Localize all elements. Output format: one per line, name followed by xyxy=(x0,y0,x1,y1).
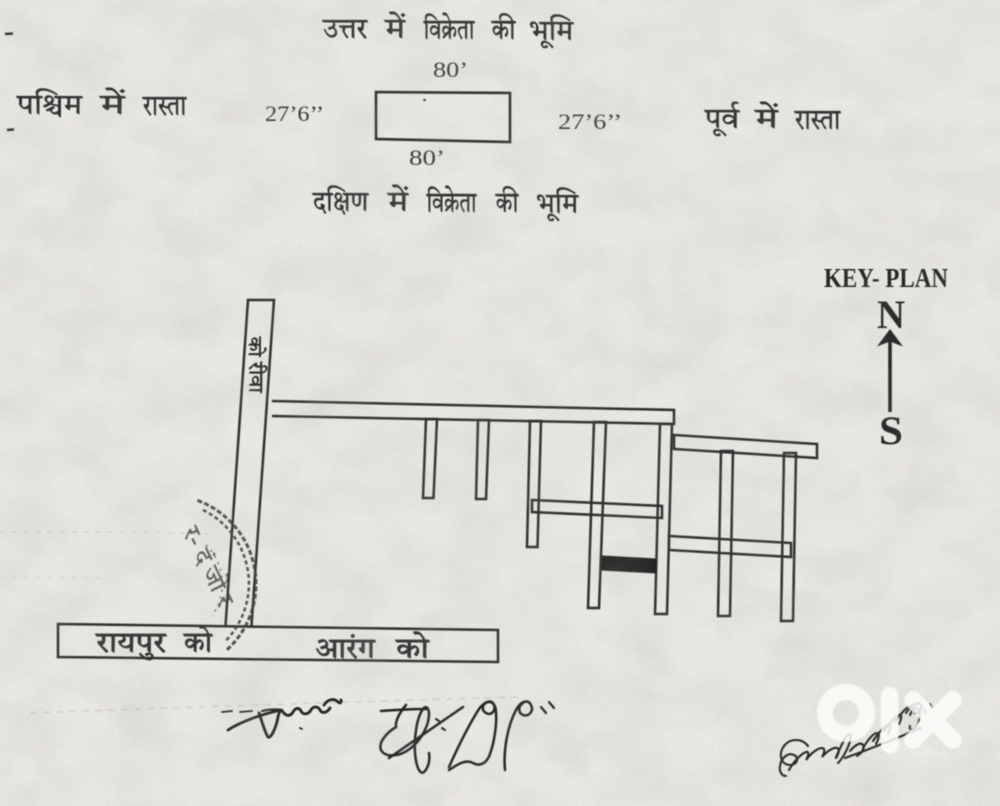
svg-text:INDIA: INDIA xyxy=(912,749,949,760)
